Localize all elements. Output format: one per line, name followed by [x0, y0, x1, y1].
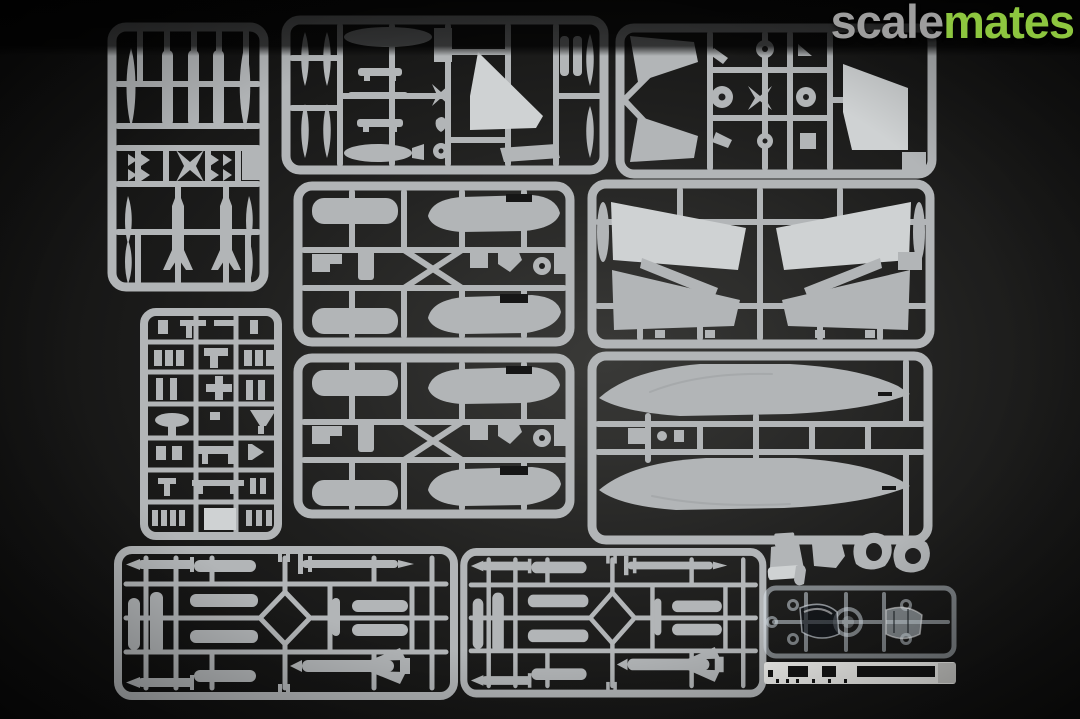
scalemates-watermark: scalemates — [831, 0, 1074, 48]
vignette — [0, 0, 1080, 719]
photo-canvas — [0, 0, 1080, 719]
watermark-text-scale: scale — [831, 0, 944, 48]
watermark-text-mates: mates — [943, 0, 1074, 48]
photo-model-kit-sprues: scalemates — [0, 0, 1080, 719]
